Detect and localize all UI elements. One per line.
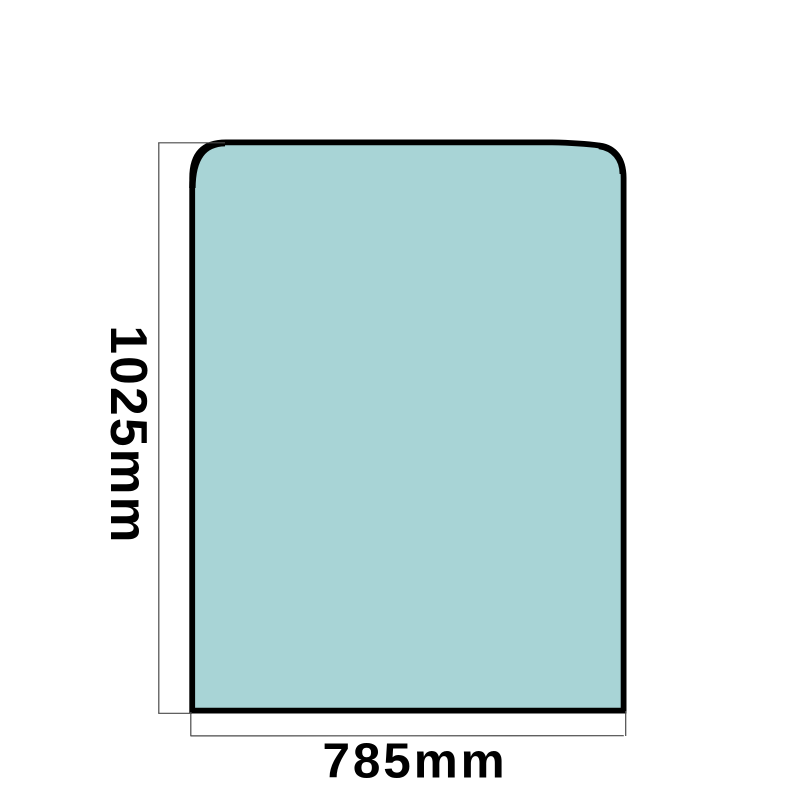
svg-text:1025mm: 1025mm <box>100 325 158 544</box>
svg-text:785mm: 785mm <box>322 734 507 789</box>
